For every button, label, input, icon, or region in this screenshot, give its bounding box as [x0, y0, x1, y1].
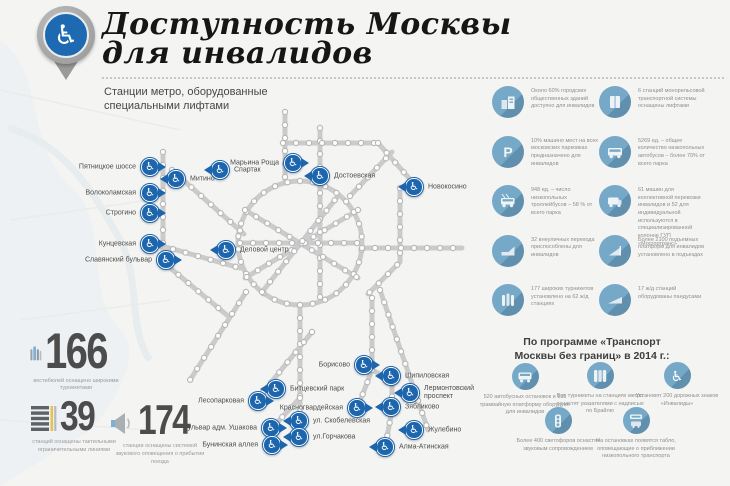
wide-turnstile-icon	[30, 333, 42, 373]
wheelchair-pin-icon: ♿	[210, 160, 230, 180]
ramp-icon	[599, 284, 631, 316]
bus-icon	[512, 363, 539, 390]
parking-icon: P	[492, 136, 524, 168]
station-label: Алма-Атинская	[399, 444, 449, 451]
stat-value: 166	[45, 330, 107, 373]
stat-row: 5269 ед. – общее количество низкопольных…	[599, 136, 709, 168]
stats-column-2: 6 станций монорельсовой транспортной сис…	[599, 86, 709, 316]
wheelchair-pin-icon: ♿	[310, 166, 330, 186]
stat-text: 948 ед. – число низкопольных троллейбусо…	[531, 185, 602, 217]
stat-text: 6 станций монорельсовой транспортной сис…	[638, 86, 709, 118]
bus-icon	[599, 136, 631, 168]
wheelchair-pin-icon: ♿	[289, 427, 309, 447]
elevator-icon	[599, 86, 631, 118]
station-label: Зябликово	[405, 404, 439, 411]
wheelchair-pin-icon: ♿	[375, 437, 395, 457]
stat-row: 948 ед. – число низкопольных троллейбусо…	[492, 185, 602, 217]
page-title: Доступность Москвы для инвалидов	[102, 10, 512, 69]
dotted-divider	[102, 77, 724, 79]
underpass-icon	[492, 235, 524, 267]
loudspeaker-icon	[110, 410, 135, 438]
station-label: Красногвардейская	[280, 405, 343, 412]
wheelchair-pin-icon: ♿	[248, 391, 268, 411]
stat-text: 61 машин для коллективной перевозки инва…	[638, 185, 709, 217]
stat-text: 177 широких турникетов установлено на 62…	[531, 284, 602, 316]
station-label: Пятницкое шоссе	[79, 164, 136, 171]
stat-caption: станции оснащены системой звукового опов…	[110, 443, 210, 467]
wheelchair-pin-icon: ♿	[354, 355, 374, 375]
stat-row: Около 60% городских общественных зданий …	[492, 86, 602, 118]
stats-column-1: Около 60% городских общественных зданий …	[492, 86, 602, 316]
buildings-icon	[492, 86, 524, 118]
lift-platform-icon	[599, 235, 631, 267]
arrival-board-icon	[623, 407, 650, 434]
station-label: Жулебино	[428, 427, 461, 434]
station-label: Деловой центр	[240, 247, 289, 254]
accessibility-pin-icon: ♿	[36, 6, 96, 86]
stat-text: 32 внеуличных перехода приспособлены для…	[531, 235, 602, 267]
van-icon	[599, 185, 631, 217]
stat-row: 177 широких турникетов установлено на 62…	[492, 284, 602, 316]
stat-block-audio-alert: 174 станции оснащены системой звукового …	[110, 402, 210, 467]
wheelchair-pin-icon: ♿	[216, 240, 236, 260]
stat-text: Около 60% городских общественных зданий …	[531, 86, 602, 118]
stat-row: 6 станций монорельсовой транспортной сис…	[599, 86, 709, 118]
wheelchair-pin-icon: ♿	[140, 203, 160, 223]
stat-caption: станций оснащены тактильными ограничител…	[30, 439, 118, 455]
wheelchair-pin-icon: ♿	[156, 250, 176, 270]
stat-value: 174	[138, 402, 189, 438]
station-label: Бунинская аллея	[202, 442, 258, 449]
wheelchair-pin-icon: ♿	[283, 153, 303, 173]
wheelchair-pin-icon: ♿	[404, 177, 424, 197]
station-label: Шипиловская	[405, 373, 449, 380]
stat-row: 32 внеуличных перехода приспособлены для…	[492, 235, 602, 267]
station-label: Спартак	[234, 167, 261, 174]
stat-row: Более 2100 подъемных платформ для инвали…	[599, 235, 709, 267]
stat-row: P 10% машино мест на всех московских пар…	[492, 136, 602, 168]
station-label: Волоколамская	[85, 190, 136, 197]
program-item: На остановках появятся табло, оповещающи…	[590, 407, 682, 461]
station-label: Строгино	[106, 210, 136, 217]
trolleybus-icon	[492, 185, 524, 217]
wheelchair-icon: ♿	[664, 362, 691, 389]
wheelchair-pin-icon: ♿	[262, 435, 282, 455]
program-title: По программе «Транспорт Москвы без грани…	[494, 336, 690, 363]
wheelchair-pin-icon: ♿	[381, 366, 401, 386]
stat-value: 39	[60, 398, 94, 434]
turnstile-icon	[492, 284, 524, 316]
station-label: Славянский бульвар	[85, 257, 152, 264]
wheelchair-pin-icon: ♿	[400, 383, 420, 403]
wheelchair-pin-icon: ♿	[140, 157, 160, 177]
stat-block-turnstiles: 166 вестибюлей оснащено широкими турнике…	[30, 330, 122, 393]
wheelchair-pin-icon: ♿	[404, 420, 424, 440]
stat-text: 10% машино мест на всех московских парко…	[531, 136, 602, 168]
wheelchair-pin-icon: ♿	[381, 397, 401, 417]
turnstile-braille-icon	[587, 362, 614, 389]
wheelchair-pin-icon: ♿	[347, 398, 367, 418]
station-label: Кунцевская	[99, 241, 136, 248]
station-label: Новокосино	[428, 184, 467, 191]
stat-text: 5269 ед. – общее количество низкопольных…	[638, 136, 709, 168]
station-label: Битцевский парк	[290, 386, 344, 393]
wheelchair-pin-icon: ♿	[266, 379, 286, 399]
tactile-lines-icon	[30, 404, 57, 434]
stat-text: Более 2100 подъемных платформ для инвали…	[638, 235, 709, 267]
station-label: Достоевская	[334, 173, 375, 180]
wheelchair-pin-icon: ♿	[140, 183, 160, 203]
station-label: ул. Скобелевская	[313, 418, 370, 425]
station-label: Лермонтовский проспект	[424, 385, 482, 401]
station-label: ул.Горчакова	[313, 434, 355, 441]
wheelchair-pin-icon: ♿	[166, 169, 186, 189]
station-label: Марьина Роща	[230, 160, 279, 167]
program-item: ♿ Установят 200 дорожных знаков «Инвалид…	[631, 362, 723, 408]
wheelchair-pin-icon: ♿	[261, 418, 281, 438]
stat-row: 61 машин для коллективной перевозки инва…	[599, 185, 709, 217]
stat-row: 17 ж/д станций оборудованы пандусами	[599, 284, 709, 316]
stat-block-tactile-lines: 39 станций оснащены тактильными ограничи…	[30, 398, 118, 455]
traffic-light-icon	[545, 407, 572, 434]
program-caption: На остановках появятся табло, оповещающи…	[590, 438, 682, 461]
stat-text: 17 ж/д станций оборудованы пандусами	[638, 284, 709, 316]
page-subtitle: Станции метро, оборудованные специальным…	[104, 86, 268, 114]
wheelchair-icon: ♿	[43, 12, 89, 58]
infographic-canvas: ♿ Доступность Москвы для инвалидов Станц…	[0, 0, 730, 486]
station-label: Борисово	[319, 362, 350, 369]
